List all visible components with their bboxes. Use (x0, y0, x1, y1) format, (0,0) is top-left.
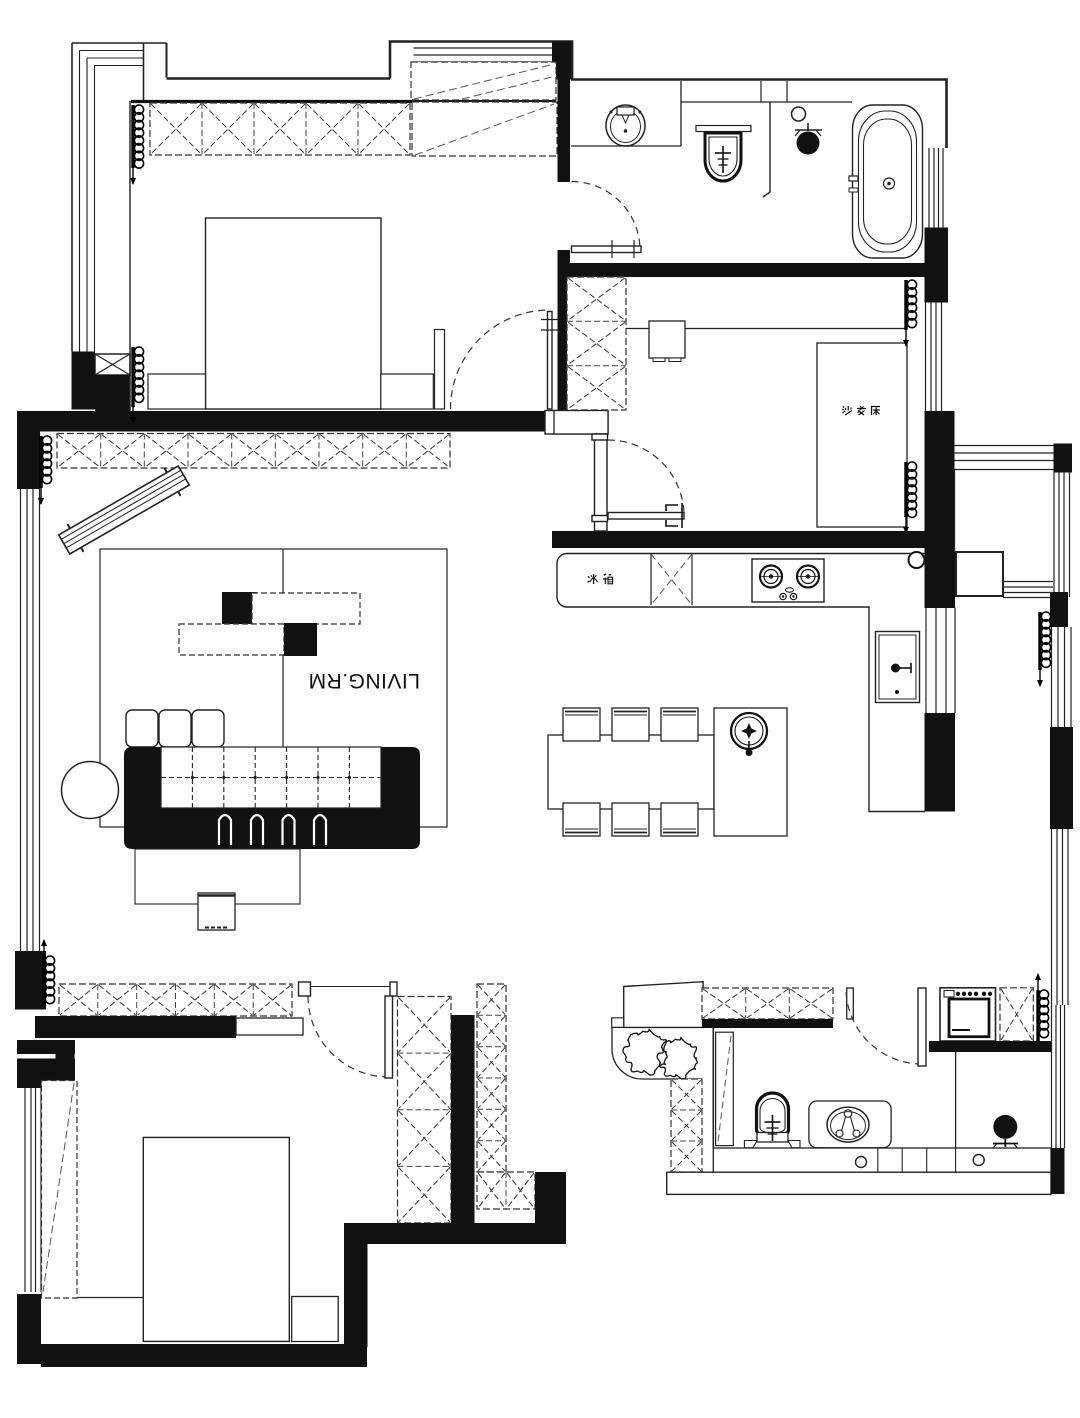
svg-text:LIVING.RM: LIVING.RM (308, 669, 420, 692)
